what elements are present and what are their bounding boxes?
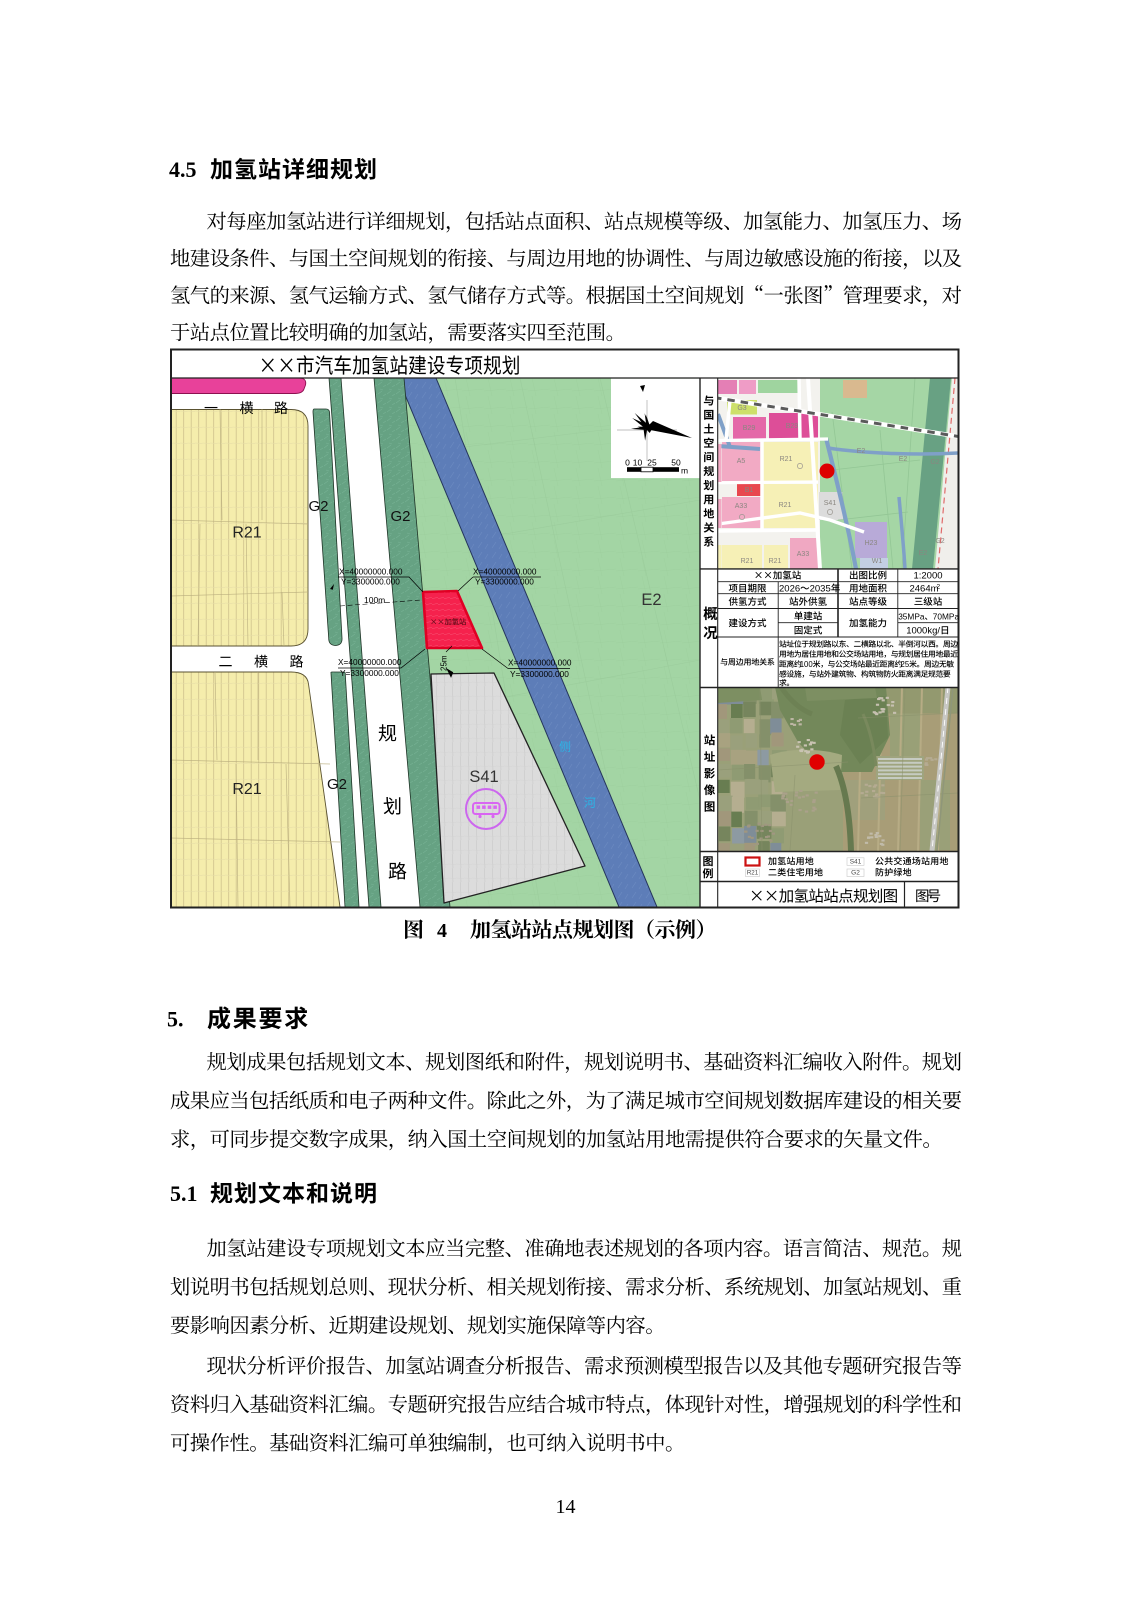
svg-text:B29: B29 bbox=[786, 423, 799, 430]
svg-text:G2: G2 bbox=[851, 870, 860, 877]
svg-text:A33: A33 bbox=[735, 503, 748, 510]
svg-text:X=40000000.000: X=40000000.000 bbox=[339, 567, 403, 577]
svg-text:R21: R21 bbox=[779, 502, 792, 509]
svg-text:1:2000: 1:2000 bbox=[913, 571, 942, 582]
svg-text:5.1: 5.1 bbox=[170, 1181, 198, 1206]
svg-text:E2: E2 bbox=[857, 448, 866, 455]
svg-text:R21: R21 bbox=[747, 870, 759, 877]
svg-text:Y=3300000.000: Y=3300000.000 bbox=[510, 669, 569, 679]
svg-text:5.: 5. bbox=[167, 1007, 184, 1032]
svg-text:R21: R21 bbox=[769, 558, 782, 565]
svg-text:G2: G2 bbox=[308, 498, 328, 515]
svg-text:2: 2 bbox=[937, 584, 941, 591]
svg-text:H23: H23 bbox=[865, 540, 878, 547]
svg-text:70MPa: 70MPa bbox=[933, 611, 960, 621]
svg-text:R21: R21 bbox=[232, 525, 261, 542]
svg-text:2026: 2026 bbox=[779, 584, 800, 595]
svg-text:m: m bbox=[681, 466, 688, 476]
svg-text:14: 14 bbox=[556, 1496, 576, 1518]
svg-text:A33: A33 bbox=[797, 551, 810, 558]
svg-text:R21: R21 bbox=[780, 456, 793, 463]
svg-text:0: 0 bbox=[625, 458, 630, 468]
svg-text:A5: A5 bbox=[737, 458, 746, 465]
svg-text:25: 25 bbox=[901, 660, 910, 669]
svg-text:S41: S41 bbox=[824, 500, 837, 507]
svg-text:2464m: 2464m bbox=[909, 584, 938, 595]
svg-text:4.5: 4.5 bbox=[169, 157, 197, 182]
svg-text:35MPa: 35MPa bbox=[898, 611, 925, 621]
svg-text:G2: G2 bbox=[327, 776, 347, 793]
svg-text:100: 100 bbox=[800, 660, 814, 669]
svg-text:G2: G2 bbox=[930, 459, 939, 466]
svg-text:X=40000000.000: X=40000000.000 bbox=[508, 658, 572, 668]
svg-text:1000kg/: 1000kg/ bbox=[906, 626, 940, 637]
svg-text:G2: G2 bbox=[390, 508, 410, 525]
svg-text:4: 4 bbox=[437, 920, 447, 942]
svg-text:R21: R21 bbox=[741, 558, 754, 565]
svg-text:Y=3300000.000: Y=3300000.000 bbox=[340, 668, 399, 678]
svg-text:G3: G3 bbox=[737, 405, 746, 412]
svg-text:R21: R21 bbox=[232, 781, 261, 798]
svg-text:25m: 25m bbox=[440, 655, 449, 671]
svg-text:Y=3300000.000: Y=3300000.000 bbox=[341, 577, 400, 587]
svg-text:E2: E2 bbox=[899, 456, 908, 463]
svg-text:50: 50 bbox=[671, 458, 681, 468]
svg-text:2035: 2035 bbox=[810, 584, 831, 595]
svg-text:10: 10 bbox=[633, 458, 643, 468]
svg-text:25: 25 bbox=[647, 458, 657, 468]
svg-text:E2: E2 bbox=[919, 550, 928, 557]
svg-text:S41: S41 bbox=[469, 768, 498, 786]
svg-text:E2: E2 bbox=[641, 591, 661, 609]
svg-text:X=40000000.000: X=40000000.000 bbox=[473, 567, 537, 577]
svg-text:X=40000000.000: X=40000000.000 bbox=[338, 657, 402, 667]
svg-text:B1: B1 bbox=[745, 487, 754, 494]
svg-text:Y=3300000.000: Y=3300000.000 bbox=[475, 577, 534, 587]
svg-text:W1: W1 bbox=[872, 558, 883, 565]
svg-text:S41: S41 bbox=[850, 859, 862, 866]
svg-text:G2: G2 bbox=[935, 538, 944, 545]
svg-text:B29: B29 bbox=[743, 425, 756, 432]
